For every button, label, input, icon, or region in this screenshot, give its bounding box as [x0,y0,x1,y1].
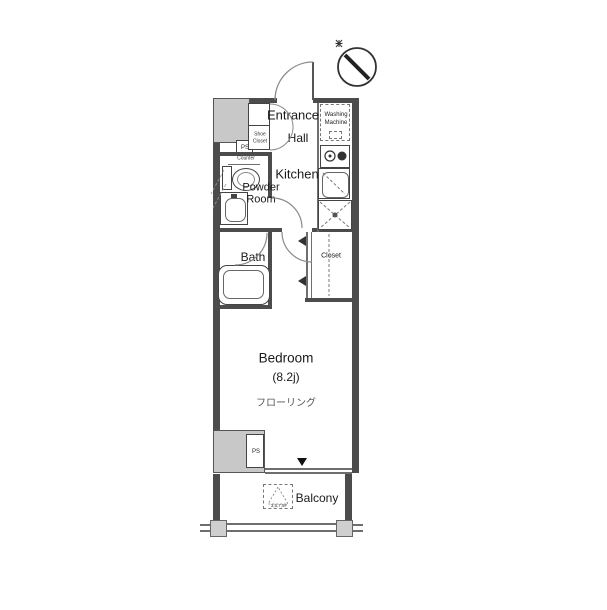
washing-machine-space: Washing Machine [320,104,350,141]
ps-bottom-label: PS [252,449,260,455]
window-sill-outer [265,468,352,470]
railing-post-right [336,520,353,537]
washing-machine-label-2: Machine [325,120,348,126]
powder-room-label-2: Room [246,195,275,206]
bath-label: Bath [241,251,266,263]
balcony-label: Balcony [296,492,339,504]
closet-label: Closet [321,253,341,260]
balcony-wall-right [345,474,352,521]
stove-icon [320,145,350,168]
railing-line-bottom [224,530,339,532]
balcony-wall-left [213,474,220,521]
toilet-tank-icon [222,166,232,190]
window-direction-marker [297,458,307,466]
hatch-floors-label: 3,5,7,9F [271,504,288,509]
counter-line [228,164,260,165]
washer-pan-icon [329,131,342,139]
closet-front-line [306,232,308,298]
railing-line-top [224,523,339,525]
entrance-label: Entrance [267,109,319,122]
compass-needle [345,55,369,79]
railing-tick-right-2 [352,530,363,532]
bedroom-size-label: (8.2j) [272,371,299,383]
pipe-shaft-bottom: PS [246,434,264,468]
railing-post-left [210,520,227,537]
washbasin-icon [220,192,248,225]
railing-tick-right-1 [352,524,363,526]
bathtub-inner [223,270,264,299]
powder-room-door-arc [272,198,302,228]
wall-bath-bottom [213,305,272,309]
compass-north-star-icon [336,40,343,47]
powder-room-label-1: Powder [242,183,279,194]
counter-label: Counter [237,157,255,162]
closet-door-marker-bottom [298,276,306,286]
bathtub-icon [218,265,270,305]
washing-machine-label-1: Washing [324,112,347,118]
shoe-closet-label-2: Closet [253,140,267,145]
evacuation-hatch-icon: 3,5,7,9F [263,484,293,509]
bedroom-label: Bedroom [259,351,314,365]
pillar-top-left [213,98,250,143]
wall-right [352,98,359,473]
washbasin-faucet-icon [231,194,237,198]
kitchen-sink-bowl-icon [322,172,349,198]
window-sill-inner [265,472,352,474]
floorplan-canvas: { "plan": { "type": "floorplan", "rooms"… [0,0,607,610]
washbasin-bowl [225,198,246,222]
kitchen-label: Kitchen [275,168,318,181]
kitchen-sink-outer [318,168,350,199]
entrance-door-swing-arc [275,62,313,100]
shoe-closet-lower-box: Shoe Closet [248,125,270,150]
refrigerator-space-icon [318,200,352,230]
flooring-label: フローリング [256,399,316,409]
shoe-closet-label-1: Shoe [254,133,266,138]
wall-closet-bottom [305,298,352,302]
plan-linework-overlay [0,0,607,610]
hall-label: Hall [288,132,309,144]
closet-front-line-2 [311,232,312,298]
closet-door-marker-top [298,236,306,246]
compass-icon [338,48,376,86]
